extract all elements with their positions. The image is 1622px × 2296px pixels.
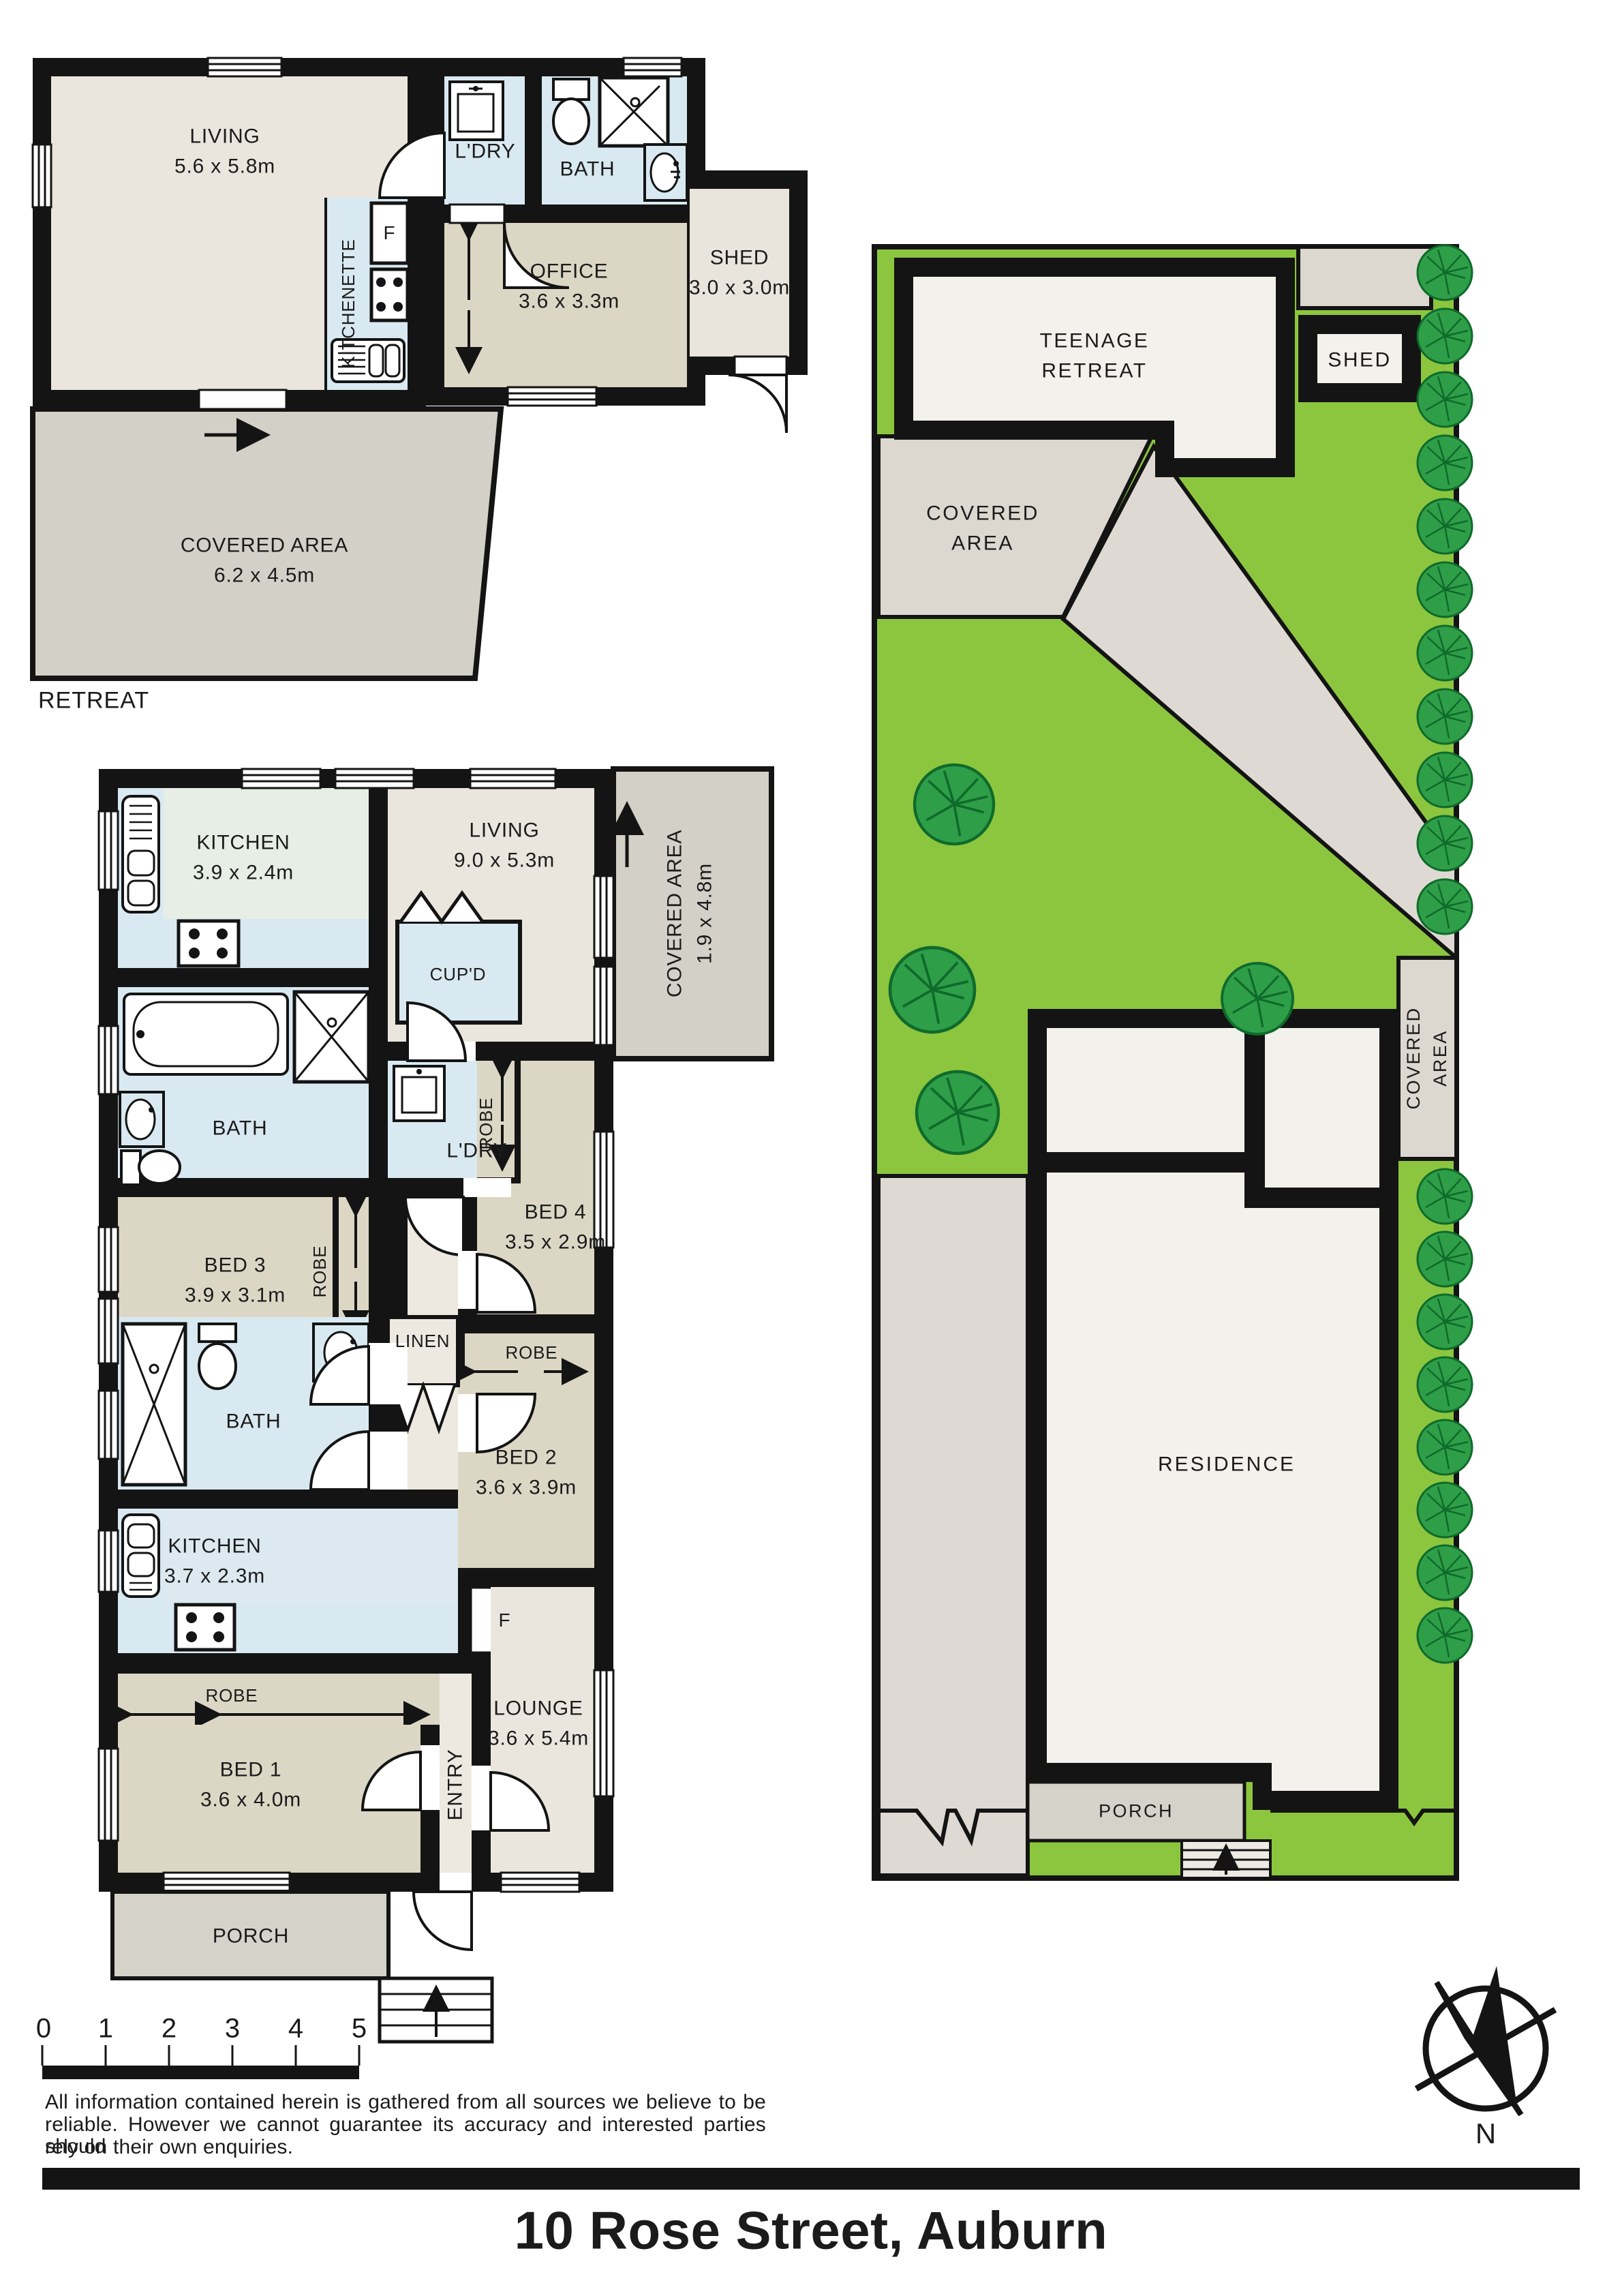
main-kitchen-label: KITCHEN3.9 x 2.4m bbox=[193, 828, 294, 888]
retreat-plan bbox=[33, 58, 808, 678]
site-plan bbox=[874, 245, 1472, 1878]
retreat-laundry-label: L'DRY bbox=[455, 136, 515, 166]
disclaimer-line-3: rely on their own enquiries. bbox=[45, 2136, 766, 2158]
main-kitchen2-sink-icon bbox=[123, 1515, 159, 1597]
retreat-shed-label: SHED3.0 x 3.0m bbox=[689, 243, 790, 303]
retreat-fridge-label: F bbox=[383, 222, 395, 244]
scale-tick-2: 2 bbox=[162, 2014, 177, 2044]
main-covered-label: COVERED AREA1.9 x 4.8m bbox=[660, 830, 720, 997]
floorplan-graphics bbox=[0, 0, 1622, 2296]
retreat-kitchenette-label: KITCHENETTE bbox=[336, 239, 362, 367]
main-bed3-label: BED 33.9 x 3.1m bbox=[185, 1251, 286, 1310]
main-basin-icon bbox=[120, 1092, 164, 1147]
page-title: 10 Rose Street, Auburn bbox=[515, 2200, 1108, 2262]
main-kitchen2-stove-icon bbox=[176, 1605, 234, 1650]
main-toilet2-icon bbox=[199, 1324, 236, 1389]
site-residence-label: RESIDENCE bbox=[1158, 1449, 1296, 1479]
site-teenage-retreat-label: TEENAGERETREAT bbox=[1040, 327, 1150, 386]
main-porch-label: PORCH bbox=[213, 1921, 289, 1951]
main-kitchen-stove-icon bbox=[179, 921, 239, 966]
room-dims: 5.6 x 5.8m bbox=[174, 151, 275, 181]
main-stairs bbox=[380, 1978, 492, 2042]
main-living-label: LIVING9.0 x 5.3m bbox=[454, 816, 555, 875]
main-robe4-label: ROBE bbox=[474, 1098, 500, 1150]
retreat-office-label: OFFICE3.6 x 3.3m bbox=[519, 257, 619, 316]
retreat-covered-label: COVERED AREA6.2 x 4.5m bbox=[181, 531, 348, 590]
main-shower2-icon bbox=[123, 1324, 185, 1485]
title-separator-bar bbox=[42, 2168, 1580, 2190]
scale-tick-5: 5 bbox=[352, 2014, 367, 2044]
retreat-shower-icon bbox=[600, 78, 668, 146]
site-shed-label: SHED bbox=[1328, 345, 1391, 375]
main-kitchen2-label: KITCHEN3.7 x 2.3m bbox=[164, 1532, 265, 1591]
main-toilet-icon bbox=[121, 1151, 180, 1185]
main-robe3-label: ROBE bbox=[307, 1245, 333, 1298]
main-fridge-label: F bbox=[498, 1610, 510, 1631]
site-tree-hedge-upper bbox=[1418, 245, 1472, 934]
main-shower-icon bbox=[294, 992, 369, 1082]
main-robe2-label: ROBE bbox=[506, 1340, 558, 1366]
main-robe1-label: ROBE bbox=[206, 1683, 258, 1709]
site-covered-rear-label: COVEREDAREA bbox=[926, 499, 1039, 558]
scale-tick-3: 3 bbox=[225, 2014, 240, 2044]
compass-north-label: N bbox=[1475, 2117, 1496, 2150]
retreat-laundry-tub-icon bbox=[450, 82, 503, 140]
main-entry-label: ENTRY bbox=[440, 1749, 470, 1820]
retreat-basin-icon bbox=[645, 145, 687, 200]
main-bath-label: BATH bbox=[213, 1113, 268, 1143]
site-corner-paving bbox=[1298, 247, 1431, 308]
main-bed4-label: BED 43.5 x 2.9m bbox=[505, 1198, 606, 1257]
retreat-toilet-icon bbox=[553, 79, 589, 144]
scale-tick-4: 4 bbox=[288, 2014, 303, 2044]
site-porch-label: PORCH bbox=[1099, 1798, 1174, 1824]
retreat-caption: RETREAT bbox=[38, 688, 149, 714]
retreat-stove-icon bbox=[371, 269, 408, 320]
main-robe1-floor bbox=[118, 1674, 440, 1725]
retreat-bath-label: BATH bbox=[560, 154, 615, 184]
main-linen-label: LINEN bbox=[395, 1329, 450, 1355]
main-bathtub-icon bbox=[124, 994, 288, 1074]
room-name: LIVING bbox=[189, 125, 260, 148]
scale-bar bbox=[42, 2045, 359, 2079]
scale-tick-0: 0 bbox=[36, 2014, 51, 2044]
site-covered-side-label: COVEREDAREA bbox=[1401, 1006, 1454, 1109]
retreat-living-label: LIVING5.6 x 5.8m bbox=[174, 122, 275, 181]
disclaimer-line-1: All information contained herein is gath… bbox=[45, 2091, 766, 2113]
compass-icon bbox=[1416, 1966, 1555, 2116]
floorplan-sheet: LIVING5.6 x 5.8m KITCHENETTE F L'DRY BAT… bbox=[0, 0, 1622, 2296]
main-laundry-tub-icon bbox=[394, 1066, 444, 1121]
scale-tick-1: 1 bbox=[98, 2014, 113, 2044]
main-bath2-label: BATH bbox=[226, 1406, 281, 1436]
site-driveway bbox=[878, 1176, 1028, 1875]
main-cupboard-label: CUP'D bbox=[430, 962, 487, 988]
main-lounge-label: LOUNGE3.6 x 5.4m bbox=[488, 1694, 589, 1753]
main-kitchen-sink-icon bbox=[123, 796, 159, 912]
site-stairs bbox=[1182, 1841, 1270, 1878]
main-bed2-label: BED 23.6 x 3.9m bbox=[476, 1443, 577, 1502]
main-bed1-label: BED 13.6 x 4.0m bbox=[200, 1755, 301, 1815]
